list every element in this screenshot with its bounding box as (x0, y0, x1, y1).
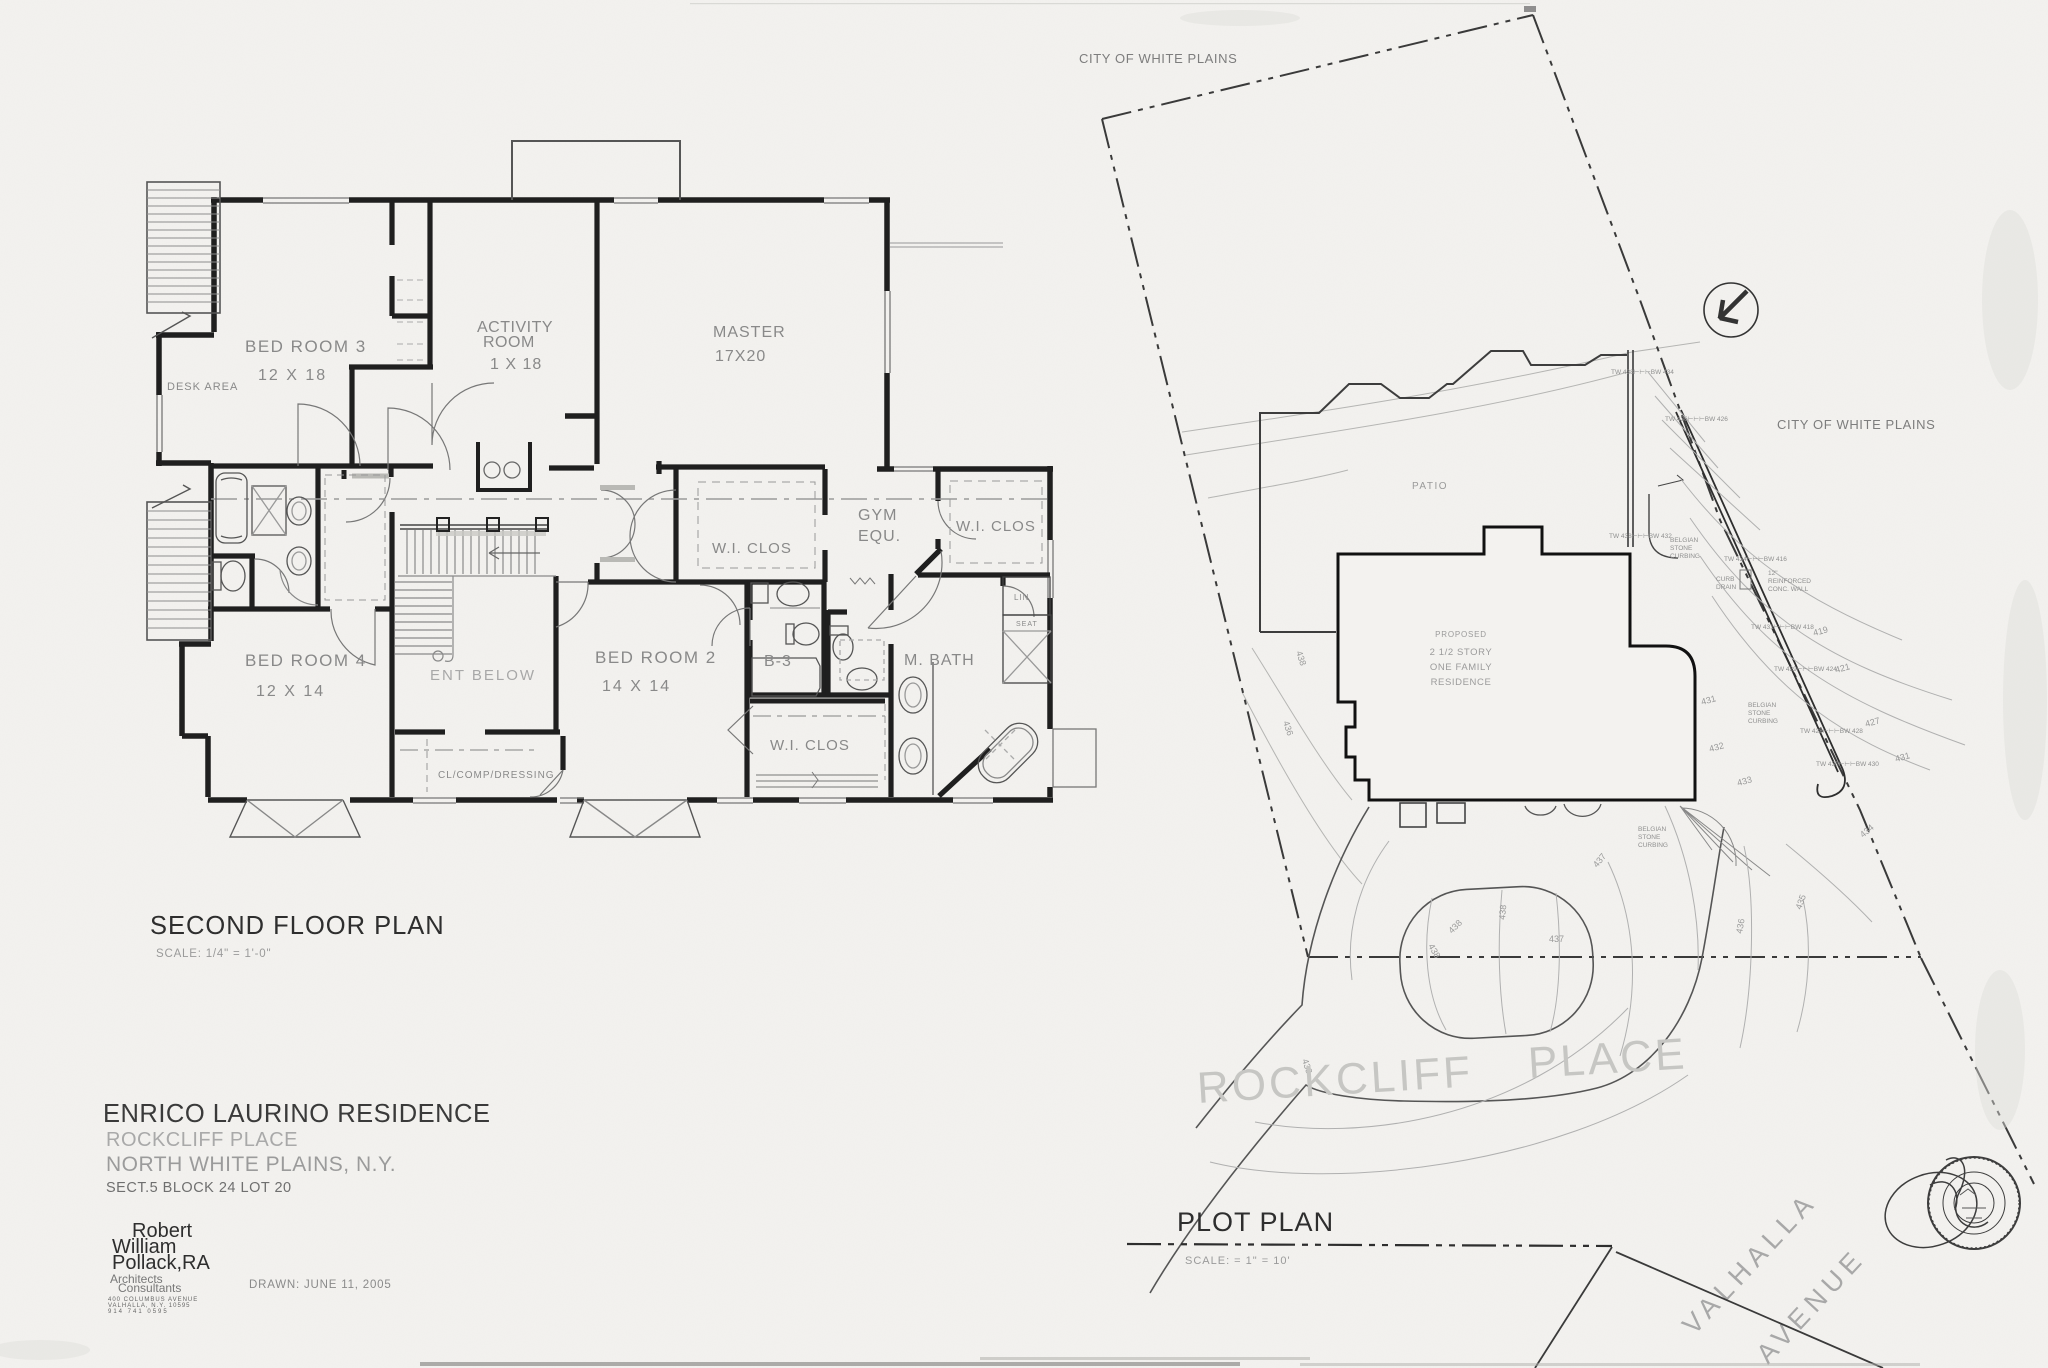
svg-text:CITY OF WHITE PLAINS: CITY OF WHITE PLAINS (1777, 417, 1935, 432)
svg-text:438: 438 (1497, 904, 1508, 920)
svg-text:REINFORCED: REINFORCED (1768, 578, 1811, 585)
svg-text:STONE: STONE (1670, 545, 1693, 552)
svg-text:Consultants: Consultants (118, 1281, 181, 1295)
svg-text:ENT BELOW: ENT BELOW (430, 667, 536, 684)
svg-text:PROPOSED: PROPOSED (1435, 630, 1487, 639)
svg-text:CURBING: CURBING (1638, 842, 1668, 849)
svg-text:TW 436⊢⊢⊢BW 426: TW 436⊢⊢⊢BW 426 (1665, 416, 1728, 423)
svg-text:PLACE: PLACE (1527, 1029, 1689, 1088)
svg-text:TW 438⊢⊢⊢BW 432: TW 438⊢⊢⊢BW 432 (1609, 533, 1672, 540)
svg-text:BED ROOM 4: BED ROOM 4 (245, 651, 367, 670)
svg-text:BELGIAN: BELGIAN (1638, 826, 1666, 833)
svg-text:MASTER: MASTER (713, 324, 786, 341)
svg-text:TW 438⊢⊢⊢BW 434: TW 438⊢⊢⊢BW 434 (1611, 369, 1674, 376)
svg-text:DRAWN: JUNE 11, 2005: DRAWN: JUNE 11, 2005 (249, 1279, 392, 1291)
svg-text:CURB: CURB (1716, 576, 1734, 583)
svg-text:Pollack,RA: Pollack,RA (112, 1252, 210, 1274)
svg-text:SCALE: 1/4" = 1'-0": SCALE: 1/4" = 1'-0" (156, 948, 271, 960)
svg-text:B-3: B-3 (764, 653, 792, 670)
svg-text:TW 430⊢⊢⊢BW 430: TW 430⊢⊢⊢BW 430 (1816, 761, 1879, 768)
svg-text:14 X 14: 14 X 14 (602, 678, 671, 695)
svg-text:2 1/2 STORY: 2 1/2 STORY (1430, 647, 1493, 658)
svg-text:TW 429⊢⊢⊢BW 424: TW 429⊢⊢⊢BW 424 (1774, 666, 1837, 673)
svg-text:M. BATH: M. BATH (904, 652, 975, 669)
svg-text:12 X 14: 12 X 14 (256, 683, 325, 700)
svg-text:TW 431⊢⊢⊢BW 418: TW 431⊢⊢⊢BW 418 (1751, 624, 1814, 631)
svg-text:ROCKCLIFF PLACE: ROCKCLIFF PLACE (106, 1129, 298, 1151)
svg-text:TW 428⊢⊢⊢BW 428: TW 428⊢⊢⊢BW 428 (1800, 728, 1863, 735)
svg-text:17X20: 17X20 (715, 348, 766, 365)
svg-text:BELGIAN: BELGIAN (1748, 702, 1776, 709)
svg-text:DRAIN: DRAIN (1716, 584, 1737, 591)
svg-text:STONE: STONE (1638, 834, 1661, 841)
svg-text:ONE FAMILY: ONE FAMILY (1430, 662, 1492, 673)
svg-text:437: 437 (1549, 934, 1564, 944)
svg-text:CITY OF WHITE PLAINS: CITY OF WHITE PLAINS (1079, 51, 1237, 66)
svg-text:TW 434⊢⊢⊢BW 416: TW 434⊢⊢⊢BW 416 (1724, 556, 1787, 563)
svg-text:CL/COMP/DRESSING: CL/COMP/DRESSING (438, 770, 555, 781)
svg-text:EQU.: EQU. (858, 528, 901, 545)
svg-text:SCALE: = 1" = 10': SCALE: = 1" = 10' (1185, 1255, 1291, 1267)
svg-text:SECOND FLOOR PLAN: SECOND FLOOR PLAN (150, 912, 445, 940)
svg-text:W.I. CLOS: W.I. CLOS (712, 540, 792, 557)
svg-text:PATIO: PATIO (1412, 481, 1448, 492)
svg-text:CURBING: CURBING (1748, 718, 1778, 725)
svg-text:CURBING: CURBING (1670, 553, 1700, 560)
svg-text:W.I. CLOS: W.I. CLOS (956, 518, 1036, 535)
svg-text:NORTH WHITE PLAINS, N.Y.: NORTH WHITE PLAINS, N.Y. (106, 1153, 396, 1176)
svg-text:1 X 18: 1 X 18 (490, 356, 542, 373)
svg-text:STONE: STONE (1748, 710, 1771, 717)
svg-text:BELGIAN: BELGIAN (1670, 537, 1698, 544)
svg-text:12 X 18: 12 X 18 (258, 367, 327, 384)
svg-text:ENRICO LAURINO RESIDENCE: ENRICO LAURINO RESIDENCE (103, 1100, 490, 1128)
svg-text:SECT.5 BLOCK 24 LOT 20: SECT.5 BLOCK 24 LOT 20 (106, 1180, 292, 1196)
svg-text:CONC. WALL: CONC. WALL (1768, 586, 1809, 593)
svg-text:RESIDENCE: RESIDENCE (1431, 677, 1492, 688)
svg-text:W.I. CLOS: W.I. CLOS (770, 737, 850, 754)
svg-text:DESK AREA: DESK AREA (167, 381, 238, 393)
svg-text:SEAT: SEAT (1016, 621, 1038, 628)
svg-text:GYM: GYM (858, 507, 897, 524)
svg-text:PLOT PLAN: PLOT PLAN (1177, 1207, 1334, 1237)
svg-text:BED ROOM 3: BED ROOM 3 (245, 337, 367, 356)
svg-text:ROOM: ROOM (483, 334, 535, 351)
svg-text:12": 12" (1768, 570, 1778, 577)
svg-text:BED ROOM 2: BED ROOM 2 (595, 648, 717, 667)
svg-text:914 741 0595: 914 741 0595 (108, 1309, 169, 1315)
svg-text:LIN: LIN (1014, 593, 1029, 602)
